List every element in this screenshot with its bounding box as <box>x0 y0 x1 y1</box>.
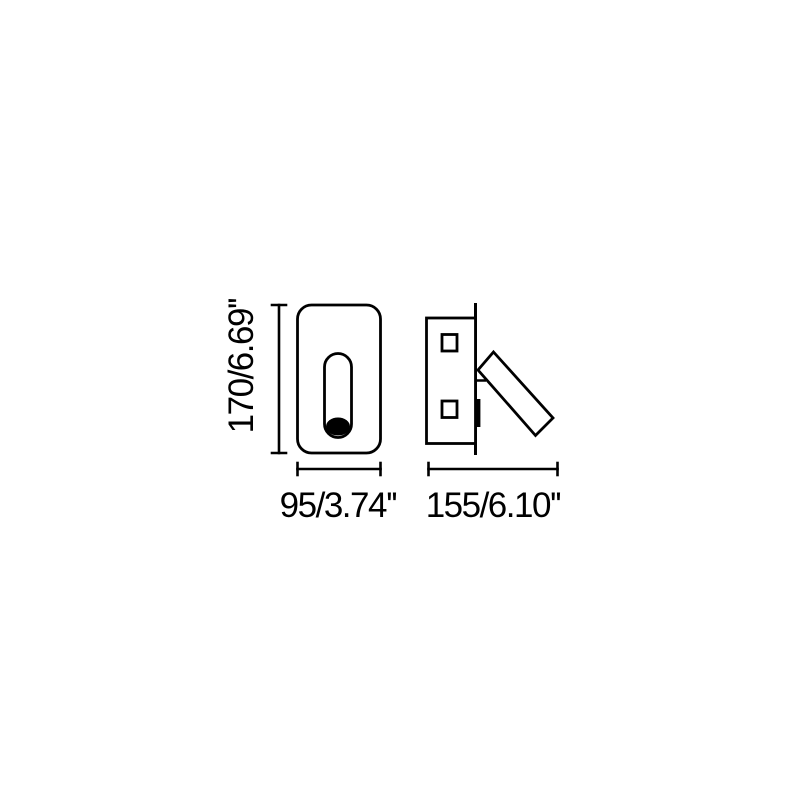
height-dimension-label: 170/6.69'' <box>222 299 261 434</box>
depth-dimension: 155/6.10'' <box>426 463 561 525</box>
arm-hinge-bracket <box>477 399 481 427</box>
drawing-canvas: 170/6.69'' 95/3.74'' <box>0 0 800 800</box>
height-dimension: 170/6.69'' <box>222 299 286 453</box>
side-view: 155/6.10'' <box>426 303 561 525</box>
width-dimension-label: 95/3.74'' <box>280 486 397 525</box>
spotlight-arm <box>478 352 553 436</box>
mounting-hole-bottom <box>442 401 457 418</box>
mounting-hole-top <box>442 335 457 352</box>
spotlight-opening <box>326 418 350 436</box>
front-view: 170/6.69'' 95/3.74'' <box>222 299 396 525</box>
depth-dimension-label: 155/6.10'' <box>426 486 561 525</box>
width-dimension: 95/3.74'' <box>280 463 397 525</box>
dimension-diagram: 170/6.69'' 95/3.74'' <box>0 0 800 800</box>
